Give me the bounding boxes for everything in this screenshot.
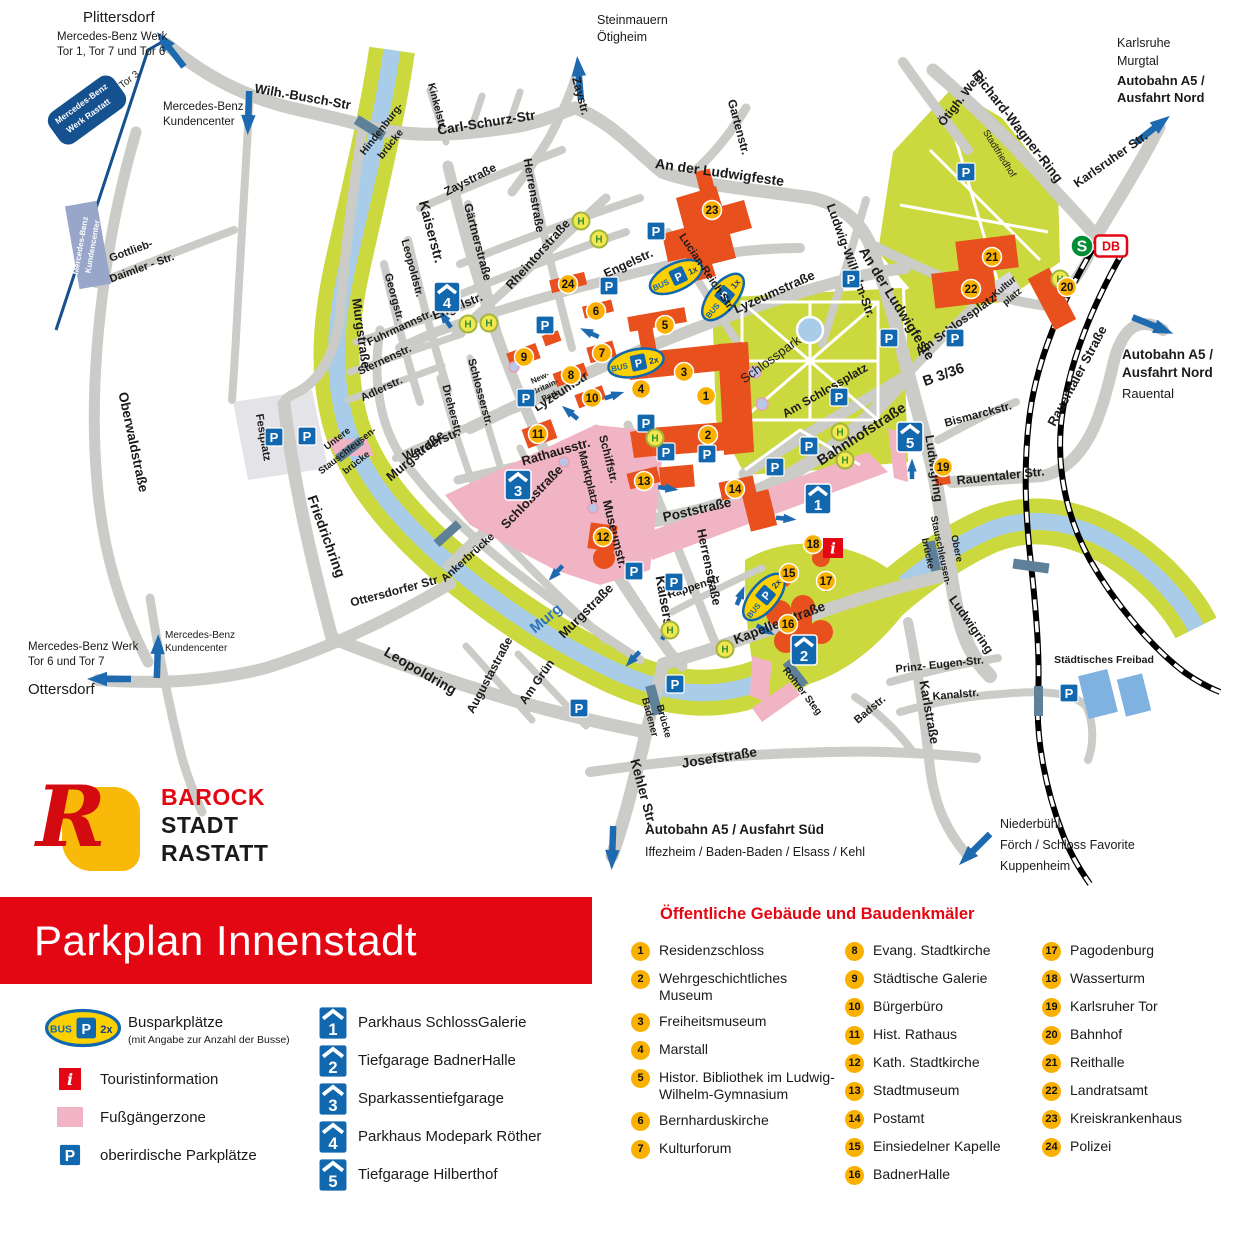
map-marker-18: 18 <box>804 535 823 554</box>
map-edge-text: Autobahn A5 / <box>1117 73 1205 88</box>
parking-icon: P <box>946 329 964 347</box>
svg-text:3: 3 <box>514 483 522 500</box>
map-marker-17: 17 <box>817 572 836 591</box>
svg-text:P: P <box>670 575 679 590</box>
logo-line-rastatt: RASTATT <box>161 839 268 867</box>
map-edge-text: Ausfahrt Nord <box>1122 365 1213 380</box>
poi-label: Bernharduskirche <box>659 1112 769 1129</box>
map-edge-text: Autobahn A5 / Ausfahrt Süd <box>645 822 824 837</box>
parking-icon: P <box>536 316 554 334</box>
map-marker-10: 10 <box>583 389 602 408</box>
street-label: Kehler Str. <box>627 757 659 826</box>
map-marker-16: 16 <box>779 615 798 634</box>
parking-icon: P <box>59 1144 81 1166</box>
direction-arrow <box>150 634 166 678</box>
poi-item-11: 11Hist. Rathaus <box>845 1026 1053 1045</box>
poi-item-7: 7Kulturforum <box>631 1140 839 1159</box>
poi-label: Kath. Stadtkirche <box>873 1054 980 1071</box>
poi-number-badge: 10 <box>845 998 864 1017</box>
street-label: Herrenstraße <box>694 528 724 607</box>
street-label: Ludwigring <box>946 593 996 656</box>
poi-number-badge: 22 <box>1042 1082 1061 1101</box>
sbahn-icon: S <box>1071 235 1093 257</box>
logo-line-stadt: STADT <box>161 811 268 839</box>
svg-text:19: 19 <box>937 462 950 474</box>
map-edge-text: Förch / Schloss Favorite <box>1000 838 1135 852</box>
direction-arrow <box>776 513 797 524</box>
poi-item-4: 4Marstall <box>631 1041 839 1060</box>
poi-number-badge: 18 <box>1042 970 1061 989</box>
svg-text:P: P <box>1065 686 1074 701</box>
parkhaus-icon-1: 1 <box>319 1007 348 1040</box>
svg-text:i: i <box>67 1070 73 1089</box>
poi-label: Wasserturm <box>1070 970 1145 987</box>
bus-stop-icon: H <box>591 231 608 248</box>
poi-number-badge: 7 <box>631 1140 650 1159</box>
poi-number-badge: 14 <box>845 1110 864 1129</box>
parking-icon: P <box>265 428 283 446</box>
map-marker-3: 3 <box>675 363 694 382</box>
poi-item-17: 17Pagodenburg <box>1042 942 1240 961</box>
poi-item-13: 13Stadtmuseum <box>845 1082 1053 1101</box>
bus-stop-icon: H <box>647 430 664 447</box>
svg-text:P: P <box>671 677 680 692</box>
map-edge-text: Ottersdorf <box>28 681 96 698</box>
poi-number-badge: 21 <box>1042 1054 1061 1073</box>
map-edge-text: Kundencenter <box>165 643 228 654</box>
map-marker-6: 6 <box>587 302 606 321</box>
bus-stop-icon: H <box>717 641 734 658</box>
logo-text: BAROCK STADT RASTATT <box>161 783 268 867</box>
parking-icon: P <box>800 437 818 455</box>
parkhaus-icon-4: 4 <box>319 1121 348 1154</box>
svg-text:P: P <box>805 439 814 454</box>
street-label: Oberwaldstraße <box>115 391 151 494</box>
svg-text:P: P <box>270 430 279 445</box>
page-title: Parkplan Innenstadt <box>34 917 417 965</box>
parking-icon: P <box>880 329 898 347</box>
poi-item-9: 9Städtische Galerie <box>845 970 1053 989</box>
street-label: Ankerbrücke <box>439 531 497 585</box>
logo-line-barock: BAROCK <box>161 783 268 811</box>
map-edge-text: Ausfahrt Nord <box>1117 90 1204 105</box>
svg-text:P: P <box>575 701 584 716</box>
map-marker-7: 7 <box>593 344 612 363</box>
poi-item-14: 14Postamt <box>845 1110 1053 1129</box>
direction-arrow <box>657 482 679 494</box>
bus-stop-icon: H <box>837 452 854 469</box>
parking-icon: P <box>1060 684 1078 702</box>
poi-item-22: 22Landratsamt <box>1042 1082 1240 1101</box>
map-edge-text: Iffezheim / Baden-Baden / Elsass / Kehl <box>645 845 865 859</box>
svg-text:1: 1 <box>328 1021 337 1039</box>
poi-number-badge: 5 <box>631 1069 650 1088</box>
map-edge-text: Mercedes-Benz Werk <box>28 641 139 653</box>
svg-text:13: 13 <box>638 476 651 488</box>
map-marker-20: 20 <box>1058 278 1077 297</box>
poi-label: Hist. Rathaus <box>873 1026 957 1043</box>
street-label: Badstr. <box>852 693 888 726</box>
poi-label: Bahnhof <box>1070 1026 1122 1043</box>
legend-surface-parking-label: oberirdische Parkplätze <box>100 1147 257 1164</box>
poi-number-badge: 6 <box>631 1112 650 1131</box>
parking-icon: P <box>665 573 683 591</box>
direction-arrow <box>907 459 916 480</box>
svg-text:4: 4 <box>328 1135 338 1153</box>
map-marker-12: 12 <box>594 528 613 547</box>
svg-text:2: 2 <box>328 1059 337 1077</box>
svg-text:P: P <box>541 318 550 333</box>
svg-text:5: 5 <box>328 1173 337 1191</box>
street-label: Murgstraße <box>555 580 616 641</box>
street-label: An der Ludwigfeste <box>654 155 785 189</box>
parking-icon: P <box>298 427 316 445</box>
poi-number-badge: 17 <box>1042 942 1061 961</box>
map-edge-text: Niederbühl <box>1000 817 1060 831</box>
svg-text:H: H <box>841 456 848 467</box>
svg-text:P: P <box>962 165 971 180</box>
svg-text:4: 4 <box>638 384 645 396</box>
direction-arrow <box>604 826 620 870</box>
svg-text:7: 7 <box>599 348 605 360</box>
poi-item-8: 8Evang. Stadtkirche <box>845 942 1053 961</box>
poi-label: Einsiedelner Kapelle <box>873 1138 1001 1155</box>
map-marker-19: 19 <box>934 458 953 477</box>
svg-text:P: P <box>662 445 671 460</box>
svg-text:3: 3 <box>681 367 687 379</box>
legend-tourist-label: Touristinformation <box>100 1071 218 1088</box>
street-label: Richard-Wagner-Ring <box>969 67 1066 185</box>
poi-item-23: 23Kreiskrankenhaus <box>1042 1110 1240 1129</box>
svg-text:P: P <box>630 564 639 579</box>
svg-text:P: P <box>885 331 894 346</box>
bus-parking-icon: BUSP2x <box>606 344 666 382</box>
poi-item-16: 16BadnerHalle <box>845 1166 1053 1185</box>
svg-text:22: 22 <box>965 284 978 296</box>
poi-label: Freiheitsmuseum <box>659 1013 766 1030</box>
legend-garage-item-5: Tiefgarage Hilberthof <box>358 1166 498 1183</box>
parking-icon: P <box>666 675 684 693</box>
street-label: Wilh.-Busch-Str <box>254 81 353 113</box>
poi-item-12: 12Kath. Stadtkirche <box>845 1054 1053 1073</box>
legend-pedestrian-swatch <box>57 1107 83 1127</box>
svg-text:4: 4 <box>443 295 452 312</box>
svg-text:20: 20 <box>1061 282 1074 294</box>
parking-icon: P <box>766 458 784 476</box>
poi-label: Polizei <box>1070 1138 1111 1155</box>
direction-arrow <box>622 649 643 670</box>
svg-text:3: 3 <box>328 1097 337 1115</box>
poi-label: Städtische Galerie <box>873 970 987 987</box>
map-marker-14: 14 <box>726 480 745 499</box>
svg-text:21: 21 <box>986 252 999 264</box>
svg-text:P: P <box>65 1148 75 1165</box>
svg-text:2: 2 <box>800 648 808 665</box>
map-marker-2: 2 <box>699 426 718 445</box>
poi-item-18: 18Wasserturm <box>1042 970 1240 989</box>
street-label: Kanalstr. <box>932 687 979 703</box>
svg-text:P: P <box>642 416 651 431</box>
svg-text:24: 24 <box>562 279 575 291</box>
street-label: Schlosspark <box>737 332 804 386</box>
legend-bus-sublabel: (mit Angabe zur Anzahl der Busse) <box>128 1034 290 1046</box>
street-label: Zaystr. <box>569 75 593 116</box>
parking-icon: P <box>570 699 588 717</box>
legend-pedestrian-label: Fußgängerzone <box>100 1109 206 1126</box>
parking-icon: P <box>600 277 618 295</box>
svg-text:11: 11 <box>532 429 545 441</box>
parking-icon: P <box>830 388 848 406</box>
svg-text:H: H <box>651 434 658 445</box>
bus-stop-icon: H <box>573 213 590 230</box>
poi-item-20: 20Bahnhof <box>1042 1026 1240 1045</box>
svg-text:14: 14 <box>729 484 742 496</box>
poi-label: Kulturforum <box>659 1140 731 1157</box>
svg-text:P: P <box>522 391 531 406</box>
map-edge-text: Murgtal <box>1117 54 1159 68</box>
street-label: Stadtfriedhof <box>980 128 1018 180</box>
map-edge-text: Mercedes-Benz <box>163 101 244 113</box>
poi-label: Karlsruher Tor <box>1070 998 1158 1015</box>
street-label: Rauentaler Straße <box>1044 323 1109 428</box>
poi-label: Bürgerbüro <box>873 998 943 1015</box>
map-marker-1: 1 <box>697 387 716 406</box>
map-edge-text: Ötigheim <box>597 30 647 44</box>
poi-label: BadnerHalle <box>873 1166 950 1183</box>
street-label: Engelstr. <box>601 246 655 281</box>
tourist-info-icon: i <box>823 538 843 558</box>
poi-label: Wehrgeschichtliches Museum <box>659 970 839 1004</box>
street-label: Rauentaler Str. <box>956 464 1045 487</box>
street-label: Kaiserstr. <box>416 199 448 265</box>
street-label: Augustastraße <box>464 634 516 715</box>
direction-arrow <box>603 388 625 403</box>
street-label: Werderstr. <box>400 425 462 464</box>
poi-number-badge: 24 <box>1042 1138 1061 1157</box>
street-label: Leopoldring <box>381 644 459 698</box>
svg-text:2: 2 <box>705 430 711 442</box>
map-edge-text: Tor 1, Tor 7 und Tor 6 <box>57 46 165 58</box>
street-label: Schiffstr. <box>596 434 620 485</box>
poi-item-6: 6Bernharduskirche <box>631 1112 839 1131</box>
map-edge-text: Kundencenter <box>163 116 235 128</box>
map-marker-21: 21 <box>983 248 1002 267</box>
svg-text:5: 5 <box>906 435 914 452</box>
svg-text:10: 10 <box>586 393 599 405</box>
street-label: Ottersdorfer Str <box>349 573 440 610</box>
svg-text:P: P <box>303 429 312 444</box>
poi-column-3: 17Pagodenburg18Wasserturm19Karlsruher To… <box>1042 942 1240 1157</box>
svg-text:S: S <box>1077 239 1088 256</box>
street-label: Adlerstr. <box>359 374 405 404</box>
poi-number-badge: 2 <box>631 970 650 989</box>
street-label: Am Grün <box>516 657 557 707</box>
poi-item-24: 24Polizei <box>1042 1138 1240 1157</box>
svg-text:P: P <box>951 331 960 346</box>
poi-number-badge: 15 <box>845 1138 864 1157</box>
street-label: B 3/36 <box>921 360 967 390</box>
svg-text:23: 23 <box>706 205 719 217</box>
svg-text:6: 6 <box>593 306 599 318</box>
map-edge-text: Rauental <box>1122 386 1174 401</box>
svg-text:8: 8 <box>568 370 575 382</box>
map-edge-text: Mercedes-Benz <box>165 630 235 641</box>
map-marker-13: 13 <box>635 472 654 491</box>
parkhaus-icon-2: 2 <box>791 635 817 665</box>
street-label: Rohrer Steg <box>780 666 824 718</box>
poi-label: Kreiskrankenhaus <box>1070 1110 1182 1127</box>
map-marker-24: 24 <box>559 275 578 294</box>
street-label: Bahnhofstraße <box>815 400 910 469</box>
bus-stop-icon: H <box>662 622 679 639</box>
map-marker-15: 15 <box>780 564 799 583</box>
street-label: Carl-Schurz-Str <box>436 107 537 137</box>
poi-number-badge: 3 <box>631 1013 650 1032</box>
svg-text:P: P <box>605 279 614 294</box>
map-marker-5: 5 <box>656 316 675 335</box>
poi-label: Histor. Bibliothek im Ludwig-Wilhelm-Gym… <box>659 1069 839 1103</box>
parkplan-map-page: BUSP1xBUSP1xBUSP2xBUSP2xWilh.-Busch-StrC… <box>0 0 1240 1240</box>
street-label: Murgstraße <box>349 297 374 369</box>
street-label: Prinz- Eugen-Str. <box>895 654 984 675</box>
svg-text:15: 15 <box>783 568 796 580</box>
street-label: Schlosserstr. <box>465 357 494 427</box>
map-marker-9: 9 <box>515 348 534 367</box>
map-edge-text: Kuppenheim <box>1000 859 1070 873</box>
svg-text:16: 16 <box>782 619 795 631</box>
svg-text:H: H <box>595 235 602 246</box>
parkhaus-icon-1: 1 <box>805 484 831 514</box>
svg-text:1: 1 <box>814 497 822 514</box>
map-edge-text: Karlsruhe <box>1117 36 1171 50</box>
poi-number-badge: 13 <box>845 1082 864 1101</box>
svg-text:H: H <box>577 217 584 228</box>
map-edge-text: Tor 6 und Tor 7 <box>28 656 105 668</box>
svg-text:H: H <box>666 626 673 637</box>
map-marker-8: 8 <box>562 366 581 385</box>
svg-text:BUS: BUS <box>50 1025 72 1036</box>
poi-number-badge: 12 <box>845 1054 864 1073</box>
parkhaus-icon-3: 3 <box>319 1083 348 1116</box>
parkhaus-icon-5: 5 <box>897 422 923 452</box>
parkhaus-icon-2: 2 <box>319 1045 348 1078</box>
svg-text:17: 17 <box>820 576 833 588</box>
poi-column-2: 8Evang. Stadtkirche9Städtische Galerie10… <box>845 942 1053 1185</box>
parking-icon: P <box>647 222 665 240</box>
street-label: Lyzeumstraße <box>731 267 817 316</box>
poi-column-1: 1Residenzschloss2Wehrgeschichtliches Mus… <box>631 942 839 1159</box>
svg-text:2x: 2x <box>100 1024 113 1036</box>
poi-label: Marstall <box>659 1041 708 1058</box>
legend-bus-label: Busparkplätze <box>128 1014 223 1031</box>
poi-number-badge: 11 <box>845 1026 864 1045</box>
bus-parking-icon: BUSP2x <box>47 1010 120 1045</box>
poi-number-badge: 1 <box>631 942 650 961</box>
svg-text:5: 5 <box>662 320 669 332</box>
poi-item-21: 21Reithalle <box>1042 1054 1240 1073</box>
poi-number-badge: 8 <box>845 942 864 961</box>
svg-text:H: H <box>485 319 492 330</box>
legend-tourist-icon: i <box>59 1068 81 1090</box>
parkhaus-icon-4: 4 <box>434 282 460 312</box>
street-label: Gartenstr. <box>725 98 753 156</box>
legend-garage-item-4: Parkhaus Modepark Röther <box>358 1128 541 1145</box>
street-label: Marktplatz <box>576 449 601 505</box>
street-label: Am Schlossplatz <box>780 360 870 420</box>
map-edge-text: Steinmauern <box>597 13 668 27</box>
street-label: Städtisches Freibad <box>1054 654 1154 666</box>
street-label: Kinkelstr. <box>425 82 449 131</box>
map-marker-23: 23 <box>703 201 722 220</box>
map-edge-text: Autobahn A5 / <box>1122 347 1213 362</box>
poi-item-10: 10Bürgerbüro <box>845 998 1053 1017</box>
street-label: Georgstr. <box>382 272 406 322</box>
parking-icon: P <box>517 389 535 407</box>
direction-arrow <box>954 829 995 870</box>
svg-text:H: H <box>464 320 471 331</box>
street-label: Bismarckstr. <box>943 400 1013 429</box>
map-marker-4: 4 <box>632 380 651 399</box>
street-label: Gärtnerstraße <box>461 202 495 283</box>
poi-item-19: 19Karlsruher Tor <box>1042 998 1240 1017</box>
street-label: Obere <box>948 534 964 563</box>
svg-text:9: 9 <box>521 352 527 364</box>
parkhaus-icon-3: 3 <box>505 470 531 500</box>
bus-stop-icon: H <box>832 424 849 441</box>
poi-item-3: 3Freiheitsmuseum <box>631 1013 839 1032</box>
poi-item-2: 2Wehrgeschichtliches Museum <box>631 970 839 1004</box>
logo-r-glyph: R <box>36 767 106 866</box>
poi-label: Evang. Stadtkirche <box>873 942 991 959</box>
street-label: Friedrichring <box>304 493 349 580</box>
parking-icon: P <box>842 270 860 288</box>
svg-text:P: P <box>847 272 856 287</box>
bus-stop-icon: H <box>481 315 498 332</box>
direction-arrow <box>578 324 601 341</box>
city-logo: R BAROCK STADT RASTATT <box>36 781 366 876</box>
poi-item-1: 1Residenzschloss <box>631 942 839 961</box>
street-label: Leopoldstr. <box>398 238 425 298</box>
svg-text:P: P <box>652 224 661 239</box>
poi-number-badge: 19 <box>1042 998 1061 1017</box>
legend-garage-item-1: Parkhaus SchlossGalerie <box>358 1014 526 1031</box>
poi-number-badge: 4 <box>631 1041 650 1060</box>
street-label: Zaystraße <box>442 160 499 198</box>
street-label: Poststraße <box>661 494 733 524</box>
poi-number-badge: 20 <box>1042 1026 1061 1045</box>
poi-label: Residenzschloss <box>659 942 764 959</box>
street-label: Karlstraße <box>916 679 942 745</box>
street-label: Herrenstraße <box>521 157 548 233</box>
map-edge-text: Plittersdorf <box>83 9 156 26</box>
svg-text:i: i <box>830 540 836 558</box>
db-logo-icon: DB <box>1095 236 1127 257</box>
svg-text:P: P <box>835 390 844 405</box>
svg-text:H: H <box>836 428 843 439</box>
street-label: Am Schlossplatz <box>913 291 999 359</box>
legend-garage-item-2: Tiefgarage BadnerHalle <box>358 1052 516 1069</box>
svg-text:H: H <box>721 645 728 656</box>
svg-text:18: 18 <box>807 539 820 551</box>
svg-text:P: P <box>81 1022 91 1038</box>
title-bar: Parkplan Innenstadt <box>0 897 592 984</box>
poi-number-badge: 23 <box>1042 1110 1061 1129</box>
poi-label: Landratsamt <box>1070 1082 1148 1099</box>
street-label: Karlsruher Str. <box>1071 129 1150 190</box>
parkhaus-icon-5: 5 <box>319 1159 348 1192</box>
poi-label: Pagodenburg <box>1070 942 1154 959</box>
map-marker-22: 22 <box>962 280 981 299</box>
